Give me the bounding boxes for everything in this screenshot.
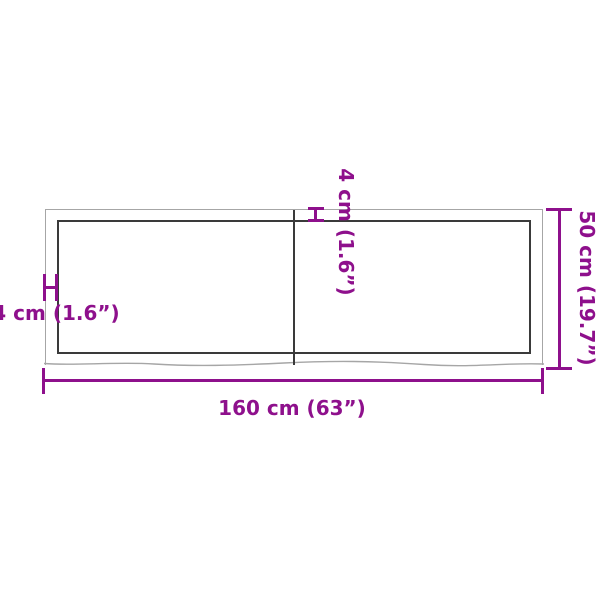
thickness-top-marker-connector — [314, 207, 317, 222]
width-dimension-label: 160 cm (63”) — [218, 398, 366, 418]
width-dimension-cap-right — [541, 368, 544, 394]
dimension-diagram: 160 cm (63”) 50 cm (19.7”) 4 cm (1.6”) 4… — [0, 0, 600, 600]
width-dimension-line — [43, 379, 544, 382]
panel-center-seam — [293, 210, 295, 365]
height-dimension-line — [558, 209, 561, 370]
height-dimension-cap-top — [546, 208, 572, 211]
height-dimension-label: 50 cm (19.7”) — [577, 210, 597, 365]
thickness-left-label: 4 cm (1.6”) — [0, 303, 120, 323]
height-dimension-cap-bottom — [546, 367, 572, 370]
thickness-left-marker-connector — [43, 286, 58, 289]
width-dimension-cap-left — [42, 368, 45, 394]
thickness-top-label: 4 cm (1.6”) — [336, 168, 356, 295]
